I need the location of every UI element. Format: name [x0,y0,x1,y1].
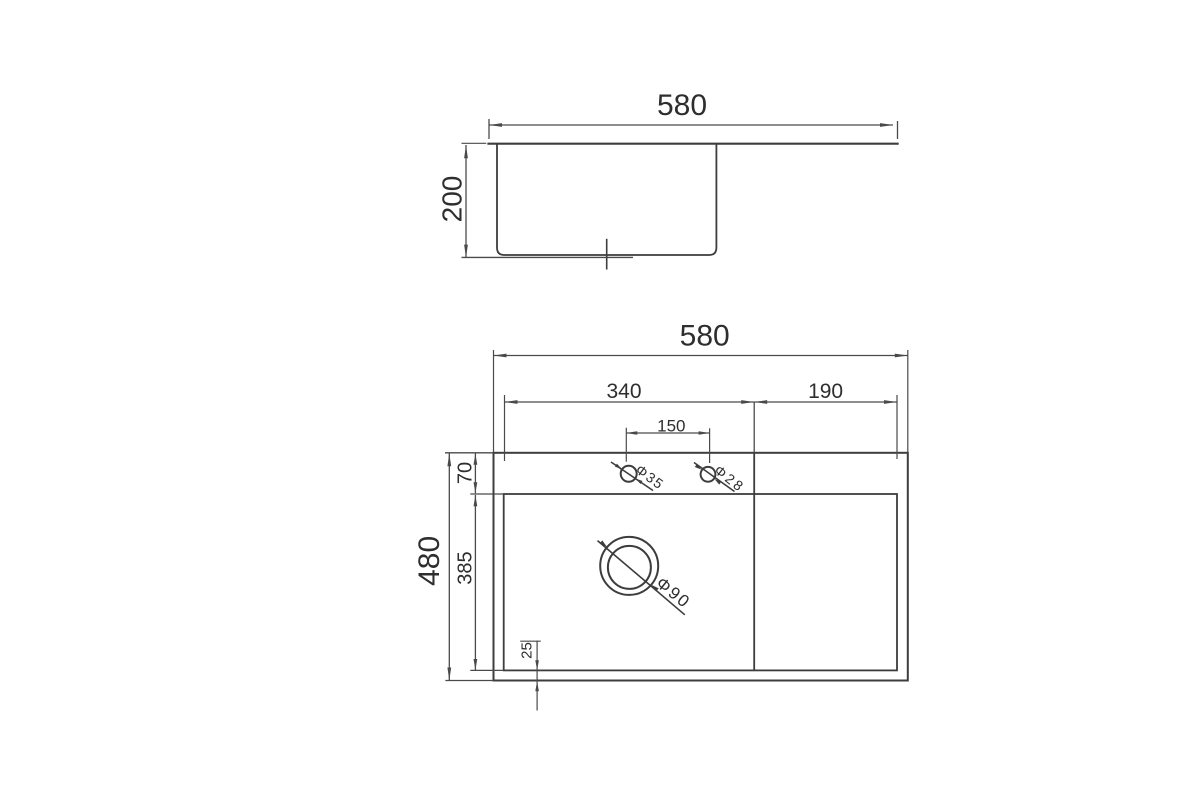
svg-text:580: 580 [657,89,707,122]
svg-text:385: 385 [454,551,476,584]
svg-text:580: 580 [680,320,730,353]
svg-text:190: 190 [808,380,843,403]
svg-text:25: 25 [519,642,536,659]
svg-text:70: 70 [454,462,476,484]
svg-text:200: 200 [437,176,468,223]
svg-text:480: 480 [413,536,446,586]
svg-text:340: 340 [606,380,641,403]
